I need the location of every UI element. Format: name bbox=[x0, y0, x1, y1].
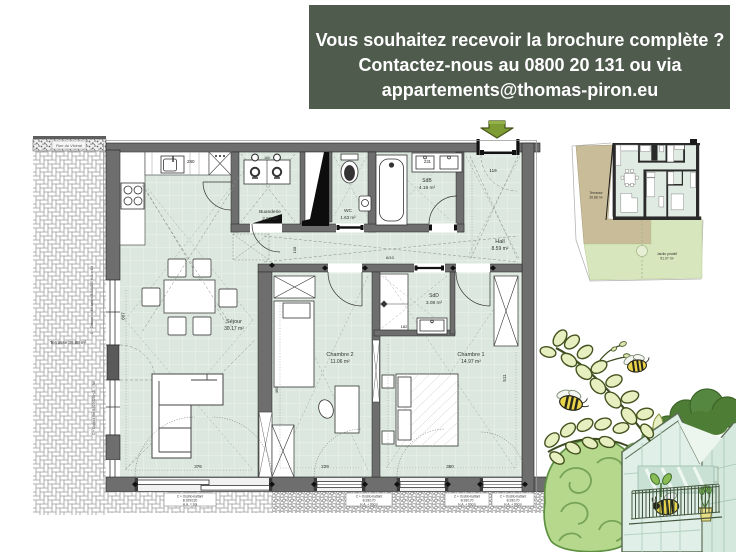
svg-text:Jardin privatif: Jardin privatif bbox=[657, 252, 677, 256]
svg-text:C + Châssis oscillo-battant B.: C + Châssis oscillo-battant B.929/220 H.… bbox=[90, 265, 94, 334]
svg-text:6/10: 6/10 bbox=[386, 255, 395, 260]
svg-text:Terrasse 39.88 m²: Terrasse 39.88 m² bbox=[50, 340, 87, 345]
svg-text:SdD: SdD bbox=[429, 293, 439, 299]
svg-text:appartements@thomas-piron.eu: appartements@thomas-piron.eu bbox=[382, 80, 659, 100]
svg-text:WC: WC bbox=[344, 208, 353, 214]
svg-text:182: 182 bbox=[401, 324, 408, 329]
svg-text:H.A. = Sol: H.A. = Sol bbox=[183, 503, 198, 507]
svg-text:Chambre 1: Chambre 1 bbox=[457, 352, 484, 358]
svg-text:460: 460 bbox=[274, 386, 279, 393]
svg-text:4.19 m²: 4.19 m² bbox=[419, 185, 436, 191]
svg-text:Contactez-nous au 0800 20 131: Contactez-nous au 0800 20 131 ou via bbox=[358, 55, 682, 75]
svg-text:511: 511 bbox=[502, 374, 507, 382]
svg-text:160: 160 bbox=[264, 156, 270, 160]
svg-text:14.97 m²: 14.97 m² bbox=[461, 359, 481, 365]
svg-text:1.63 m²: 1.63 m² bbox=[340, 215, 356, 220]
svg-text:Rue du Vicinal: Rue du Vicinal bbox=[56, 143, 82, 148]
svg-text:H.A. + 90cm: H.A. + 90cm bbox=[504, 503, 522, 507]
svg-text:Vous souhaitez recevoir la bro: Vous souhaitez recevoir la brochure comp… bbox=[316, 30, 725, 50]
svg-text:231: 231 bbox=[424, 159, 432, 164]
svg-text:11.06 m²: 11.06 m² bbox=[330, 359, 350, 365]
svg-text:91.07 m²: 91.07 m² bbox=[660, 257, 674, 261]
svg-text:280: 280 bbox=[187, 159, 195, 164]
svg-text:39.88 m²: 39.88 m² bbox=[589, 196, 603, 200]
svg-text:3.08 m²: 3.08 m² bbox=[426, 300, 443, 306]
svg-text:Chambre 2: Chambre 2 bbox=[326, 352, 353, 358]
svg-text:H.A. + 90cm: H.A. + 90cm bbox=[458, 503, 476, 507]
svg-text:Buanderie: Buanderie bbox=[259, 209, 281, 215]
svg-text:C + Châssis fixe B.929/220 H.A: C + Châssis fixe B.929/220 H.A. = Sol bbox=[92, 381, 96, 435]
svg-text:376: 376 bbox=[194, 464, 202, 469]
svg-text:8.59 m²: 8.59 m² bbox=[492, 246, 509, 252]
svg-text:H.A. + 90cm: H.A. + 90cm bbox=[360, 503, 378, 507]
svg-text:Hall: Hall bbox=[495, 239, 504, 245]
svg-text:607: 607 bbox=[121, 312, 126, 320]
svg-text:158: 158 bbox=[292, 246, 297, 253]
svg-text:Terrasse: Terrasse bbox=[589, 191, 602, 195]
svg-text:2.90 m²: 2.90 m² bbox=[262, 216, 278, 221]
svg-text:SdB: SdB bbox=[422, 178, 432, 184]
svg-text:360: 360 bbox=[446, 464, 454, 469]
svg-text:119: 119 bbox=[489, 168, 497, 173]
